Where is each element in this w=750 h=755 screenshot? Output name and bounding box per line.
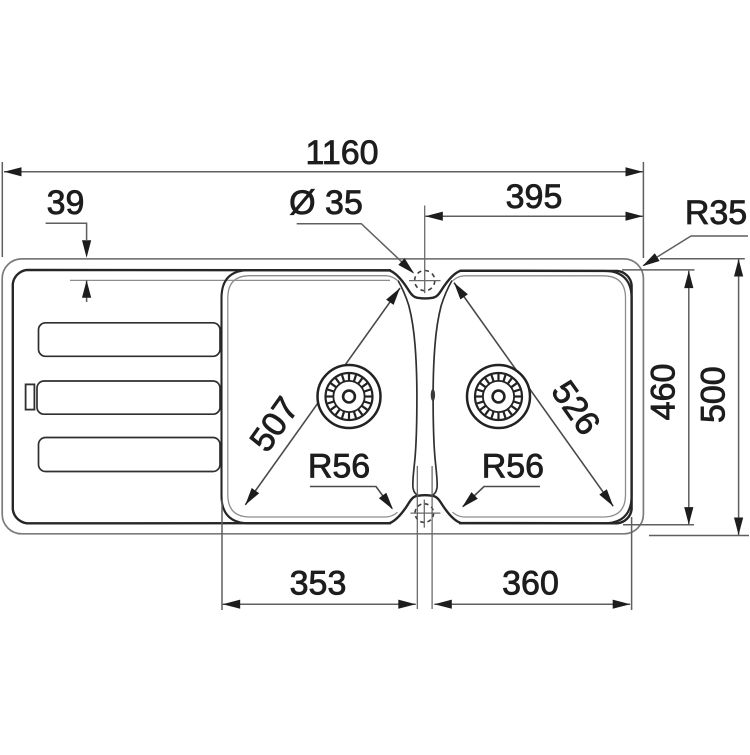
svg-text:500: 500	[695, 366, 733, 423]
svg-text:R56: R56	[482, 448, 544, 486]
svg-text:1160: 1160	[305, 134, 378, 172]
svg-text:R35: R35	[685, 194, 747, 232]
svg-text:460: 460	[645, 364, 683, 421]
svg-text:395: 395	[506, 178, 563, 216]
svg-text:360: 360	[502, 565, 559, 603]
svg-text:R56: R56	[308, 448, 370, 486]
svg-text:Ø 35: Ø 35	[289, 184, 363, 222]
svg-text:39: 39	[47, 184, 85, 222]
svg-text:353: 353	[290, 565, 347, 603]
